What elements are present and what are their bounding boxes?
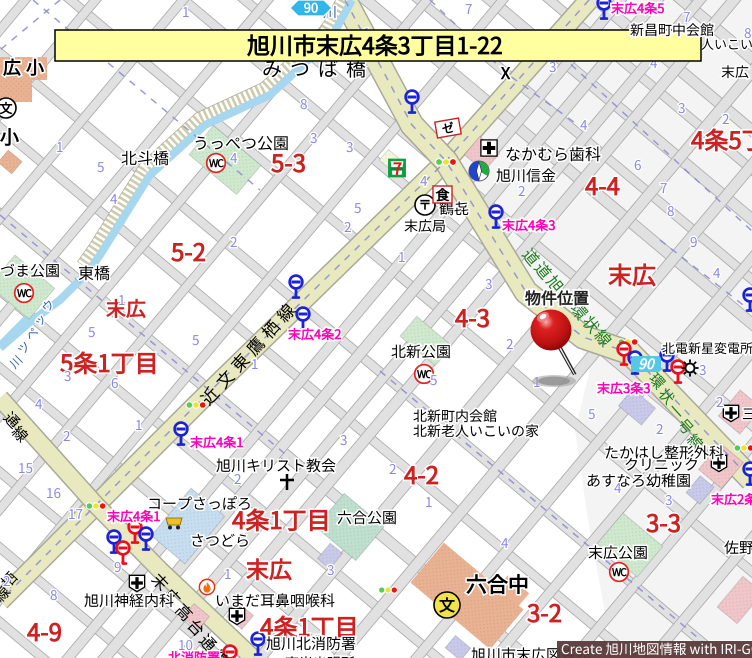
- svg-text:2: 2: [389, 458, 397, 478]
- svg-text:5: 5: [354, 197, 362, 217]
- svg-text:90: 90: [638, 354, 656, 374]
- svg-text:2: 2: [230, 231, 238, 251]
- svg-text:佐野病院: 佐野病院: [724, 537, 752, 558]
- svg-text:2: 2: [716, 391, 724, 411]
- svg-text:8: 8: [667, 200, 675, 220]
- svg-text:2: 2: [518, 180, 526, 200]
- svg-text:旭川市末広4条3丁目1-22: 旭川市末広4条3丁目1-22: [246, 27, 503, 61]
- svg-text:広小: 広小: [3, 54, 49, 80]
- svg-text:4: 4: [713, 262, 721, 282]
- svg-text:食: 食: [436, 185, 451, 205]
- svg-text:末広: 末広: [721, 62, 749, 82]
- svg-text:2: 2: [344, 216, 352, 236]
- svg-text:1: 1: [425, 491, 433, 511]
- svg-text:末広: 末広: [106, 293, 146, 322]
- svg-text:2: 2: [63, 425, 71, 445]
- svg-text:末広4条5: 末広4条5: [610, 0, 664, 17]
- svg-text:新昌町中会館: 新昌町中会館: [630, 20, 714, 40]
- svg-text:東橋: 東橋: [78, 260, 110, 284]
- svg-text:5: 5: [97, 156, 105, 176]
- svg-text:北電新星変電所: 北電新星変電所: [662, 338, 752, 357]
- svg-text:うっぺつ公園: うっぺつ公園: [193, 130, 289, 154]
- svg-text:6: 6: [111, 372, 119, 392]
- svg-text:末広4条2: 末広4条2: [287, 324, 341, 343]
- svg-text:5: 5: [588, 403, 596, 423]
- svg-text:づま公園: づま公園: [0, 260, 60, 281]
- svg-text:1: 1: [135, 414, 143, 434]
- svg-text:1: 1: [224, 563, 232, 583]
- svg-text:4: 4: [501, 532, 509, 552]
- svg-text:3: 3: [64, 365, 72, 385]
- svg-text:北新老人いこいの家: 北新老人いこいの家: [413, 421, 539, 441]
- svg-text:さつどら: さつどら: [190, 530, 250, 551]
- svg-text:2: 2: [656, 418, 664, 438]
- svg-text:末広局: 末広局: [404, 216, 446, 236]
- svg-text:4-4: 4-4: [585, 167, 620, 202]
- svg-text:3: 3: [699, 359, 707, 379]
- svg-text:1: 1: [251, 353, 259, 373]
- svg-text:小: 小: [0, 123, 19, 150]
- svg-text:末広公園: 末広公園: [588, 542, 648, 563]
- svg-text:X: X: [500, 60, 511, 84]
- svg-text:4: 4: [35, 393, 43, 413]
- svg-text:5-2: 5-2: [171, 233, 206, 268]
- svg-text:3: 3: [346, 136, 354, 156]
- svg-text:旭川神経内科: 旭川神経内科: [84, 590, 174, 611]
- svg-text:いまだ耳鼻咽喉科: いまだ耳鼻咽喉科: [215, 590, 335, 611]
- svg-text:5: 5: [430, 369, 438, 389]
- svg-text:Create 旭川地図情報 with IRI-GO: Create 旭川地図情報 with IRI-GO: [561, 638, 752, 658]
- svg-text:16: 16: [46, 482, 61, 502]
- svg-text:4: 4: [110, 188, 118, 208]
- svg-text:旭川北消防署: 旭川北消防署: [266, 633, 356, 654]
- svg-text:北消防署: 北消防署: [168, 647, 220, 658]
- svg-text:3: 3: [678, 97, 686, 117]
- svg-text:6: 6: [634, 154, 642, 174]
- svg-text:5: 5: [88, 321, 96, 341]
- svg-text:末広2条: 末広2条: [710, 489, 752, 508]
- svg-text:北斗橋: 北斗橋: [121, 145, 169, 169]
- svg-text:4-2: 4-2: [404, 456, 439, 491]
- svg-text:1: 1: [56, 136, 64, 156]
- svg-text:3: 3: [665, 489, 673, 509]
- svg-text:3-2: 3-2: [527, 594, 562, 629]
- svg-text:8: 8: [300, 93, 308, 113]
- svg-text:3: 3: [485, 273, 493, 293]
- svg-text:末広4条1: 末広4条1: [106, 506, 160, 525]
- svg-text:3: 3: [310, 127, 318, 147]
- svg-text:15: 15: [18, 457, 33, 477]
- svg-text:末広: 末広: [246, 551, 292, 585]
- svg-text:9: 9: [114, 556, 122, 576]
- svg-text:1: 1: [398, 246, 406, 266]
- svg-text:7: 7: [660, 177, 668, 197]
- svg-text:旭川信金: 旭川信金: [496, 165, 556, 186]
- svg-text:末広3条3: 末広3条3: [596, 378, 650, 397]
- svg-text:7: 7: [465, 0, 473, 18]
- svg-text:3: 3: [327, 559, 335, 579]
- svg-text:10: 10: [178, 634, 193, 654]
- svg-text:3: 3: [340, 429, 348, 449]
- svg-text:4: 4: [580, 114, 588, 134]
- svg-text:2: 2: [234, 468, 242, 488]
- svg-text:三: 三: [742, 404, 752, 424]
- svg-text:2: 2: [3, 570, 11, 590]
- svg-text:あすなろ幼稚園: あすなろ幼稚園: [586, 470, 691, 491]
- svg-text:末広4条3: 末広4条3: [501, 215, 555, 234]
- svg-text:8: 8: [50, 584, 58, 604]
- svg-text:4: 4: [614, 477, 622, 497]
- svg-text:六合公園: 六合公園: [337, 507, 397, 528]
- svg-text:4: 4: [230, 147, 238, 167]
- svg-text:末広4条1: 末広4条1: [189, 432, 243, 451]
- svg-text:8: 8: [744, 22, 752, 42]
- svg-text:六合中: 六合中: [466, 569, 529, 599]
- svg-text:コープさっぽろ: コープさっぽろ: [147, 493, 252, 514]
- svg-text:3-3: 3-3: [646, 504, 681, 539]
- svg-text:物件位置: 物件位置: [525, 285, 589, 309]
- svg-text:1: 1: [118, 289, 126, 309]
- svg-text:4-9: 4-9: [27, 613, 62, 648]
- svg-text:4-3: 4-3: [455, 299, 490, 334]
- svg-text:17: 17: [68, 503, 83, 523]
- svg-text:東光出張所: 東光出張所: [285, 653, 355, 658]
- svg-text:1: 1: [182, 1, 190, 21]
- svg-text:2: 2: [506, 333, 514, 353]
- svg-text:2: 2: [722, 108, 730, 128]
- svg-text:4: 4: [420, 170, 428, 190]
- svg-text:なかむら歯科: なかむら歯科: [505, 141, 601, 165]
- svg-text:90: 90: [304, 0, 318, 17]
- svg-text:9: 9: [690, 231, 698, 251]
- svg-text:5: 5: [192, 329, 200, 349]
- svg-text:北新公園: 北新公園: [391, 341, 451, 362]
- svg-text:5条1丁目: 5条1丁目: [60, 344, 159, 379]
- svg-text:末広: 末広: [608, 256, 656, 291]
